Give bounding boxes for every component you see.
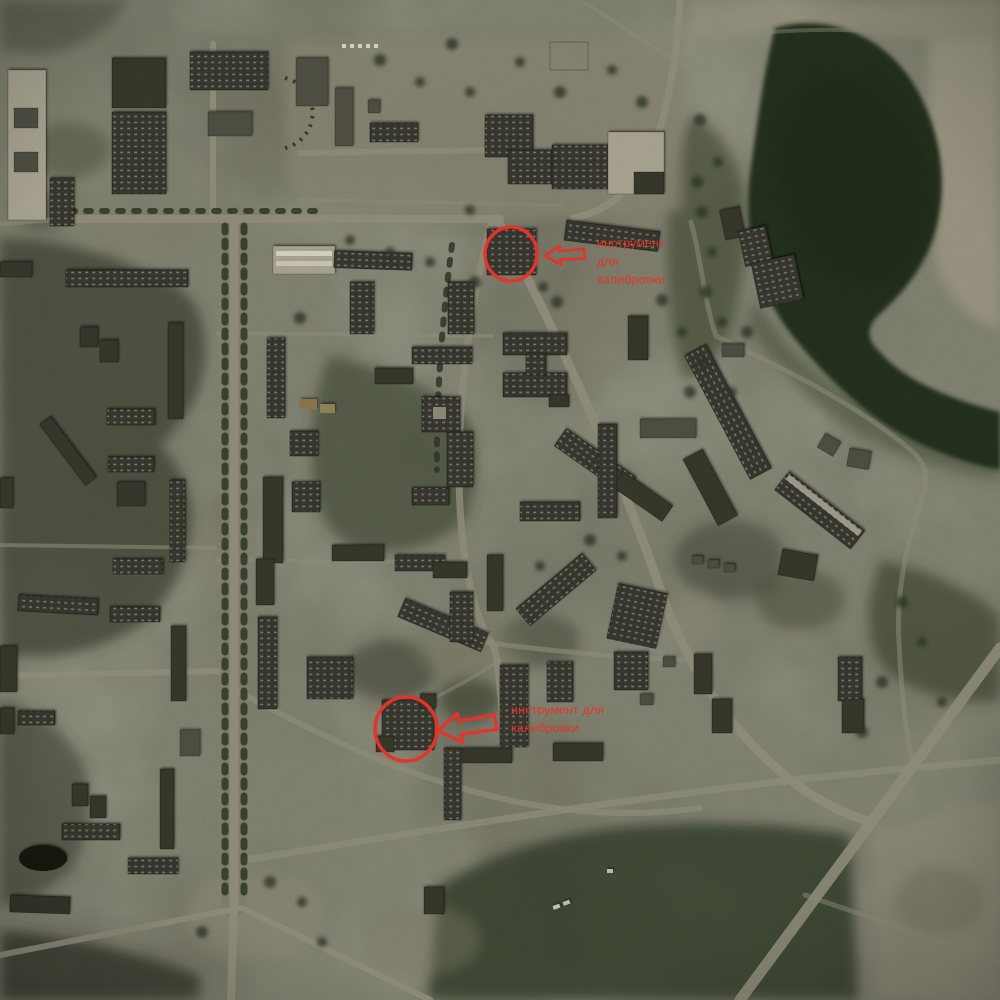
annotation-text-line: калибровки xyxy=(597,273,665,287)
satellite-map-image: инструмент для калибровки инструмент для… xyxy=(0,0,1000,1000)
vignette xyxy=(0,0,1000,1000)
annotation-text-line: инструмент для xyxy=(511,703,604,717)
annotation-text-line: инструмент xyxy=(597,236,665,250)
annotation-text-line: калибровки xyxy=(511,721,579,735)
screenshot-root: инструмент для калибровки инструмент для… xyxy=(0,0,1000,1000)
annotation-text-line: для xyxy=(597,255,619,269)
